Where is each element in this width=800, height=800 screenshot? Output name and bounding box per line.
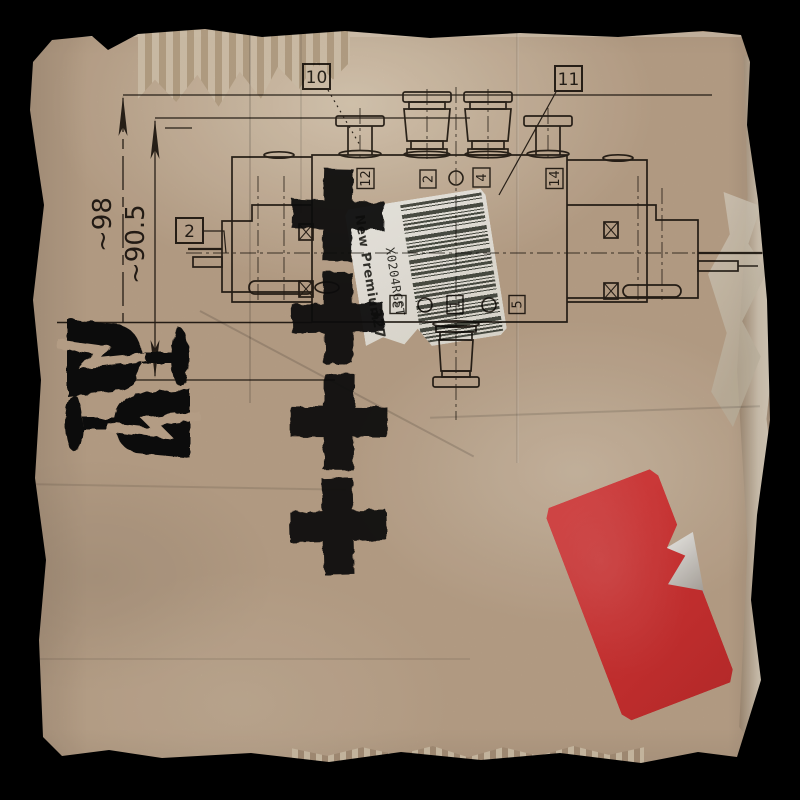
cardboard-box-panel: New Premium 327 X0204RGST ~98 ~90.5 [0,0,800,800]
cross-stamp [290,373,387,470]
fragile-glass-icon [65,389,200,458]
fragile-glass-icon [58,319,189,396]
cross-stamp [288,476,387,575]
cross-stamps [288,168,387,576]
cross-stamp [291,271,385,365]
cross-stamp [291,168,385,262]
scene: New Premium 327 X0204RGST ~98 ~90.5 [0,0,800,800]
fragile-glass-stamps [58,319,200,458]
